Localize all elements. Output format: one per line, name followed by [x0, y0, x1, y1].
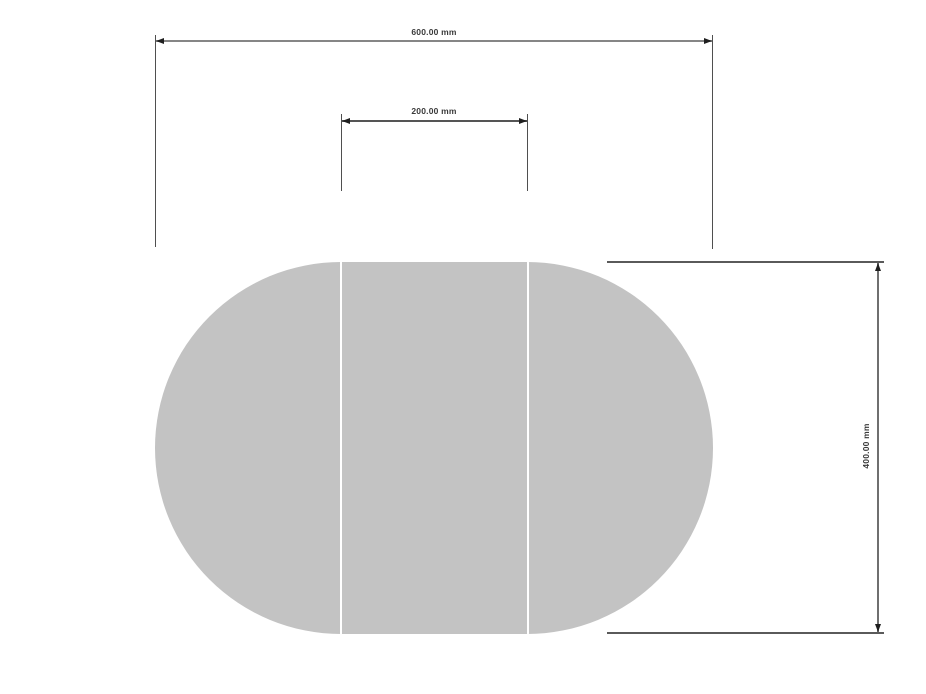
- leaf-divider-line-left: [340, 262, 342, 634]
- arrowhead-right-icon: [519, 118, 527, 124]
- dimension-line-overall-height: [877, 263, 879, 632]
- arrowhead-left-icon: [342, 118, 350, 124]
- dimension-line-overall-width: [156, 40, 712, 42]
- drawing-canvas: 600.00 mm 200.00 mm 400.00 mm: [0, 0, 926, 694]
- arrowhead-up-icon: [875, 263, 881, 271]
- oval-table-top-shape: [155, 262, 713, 634]
- dimension-label-overall-width: 600.00 mm: [394, 27, 474, 37]
- extension-line-leaf-right: [527, 114, 528, 191]
- dimension-line-center-leaf: [342, 120, 527, 122]
- arrowhead-left-icon: [156, 38, 164, 44]
- extension-line-width-left: [155, 35, 156, 247]
- leaf-divider-line-right: [527, 262, 529, 634]
- dimension-label-center-leaf-width: 200.00 mm: [394, 106, 474, 116]
- arrowhead-down-icon: [875, 624, 881, 632]
- extension-line-height-bottom: [607, 632, 884, 634]
- extension-line-leaf-left: [341, 114, 342, 191]
- extension-line-width-right: [712, 35, 713, 249]
- dimension-label-overall-height: 400.00 mm: [861, 406, 871, 486]
- extension-line-height-top: [607, 261, 884, 263]
- arrowhead-right-icon: [704, 38, 712, 44]
